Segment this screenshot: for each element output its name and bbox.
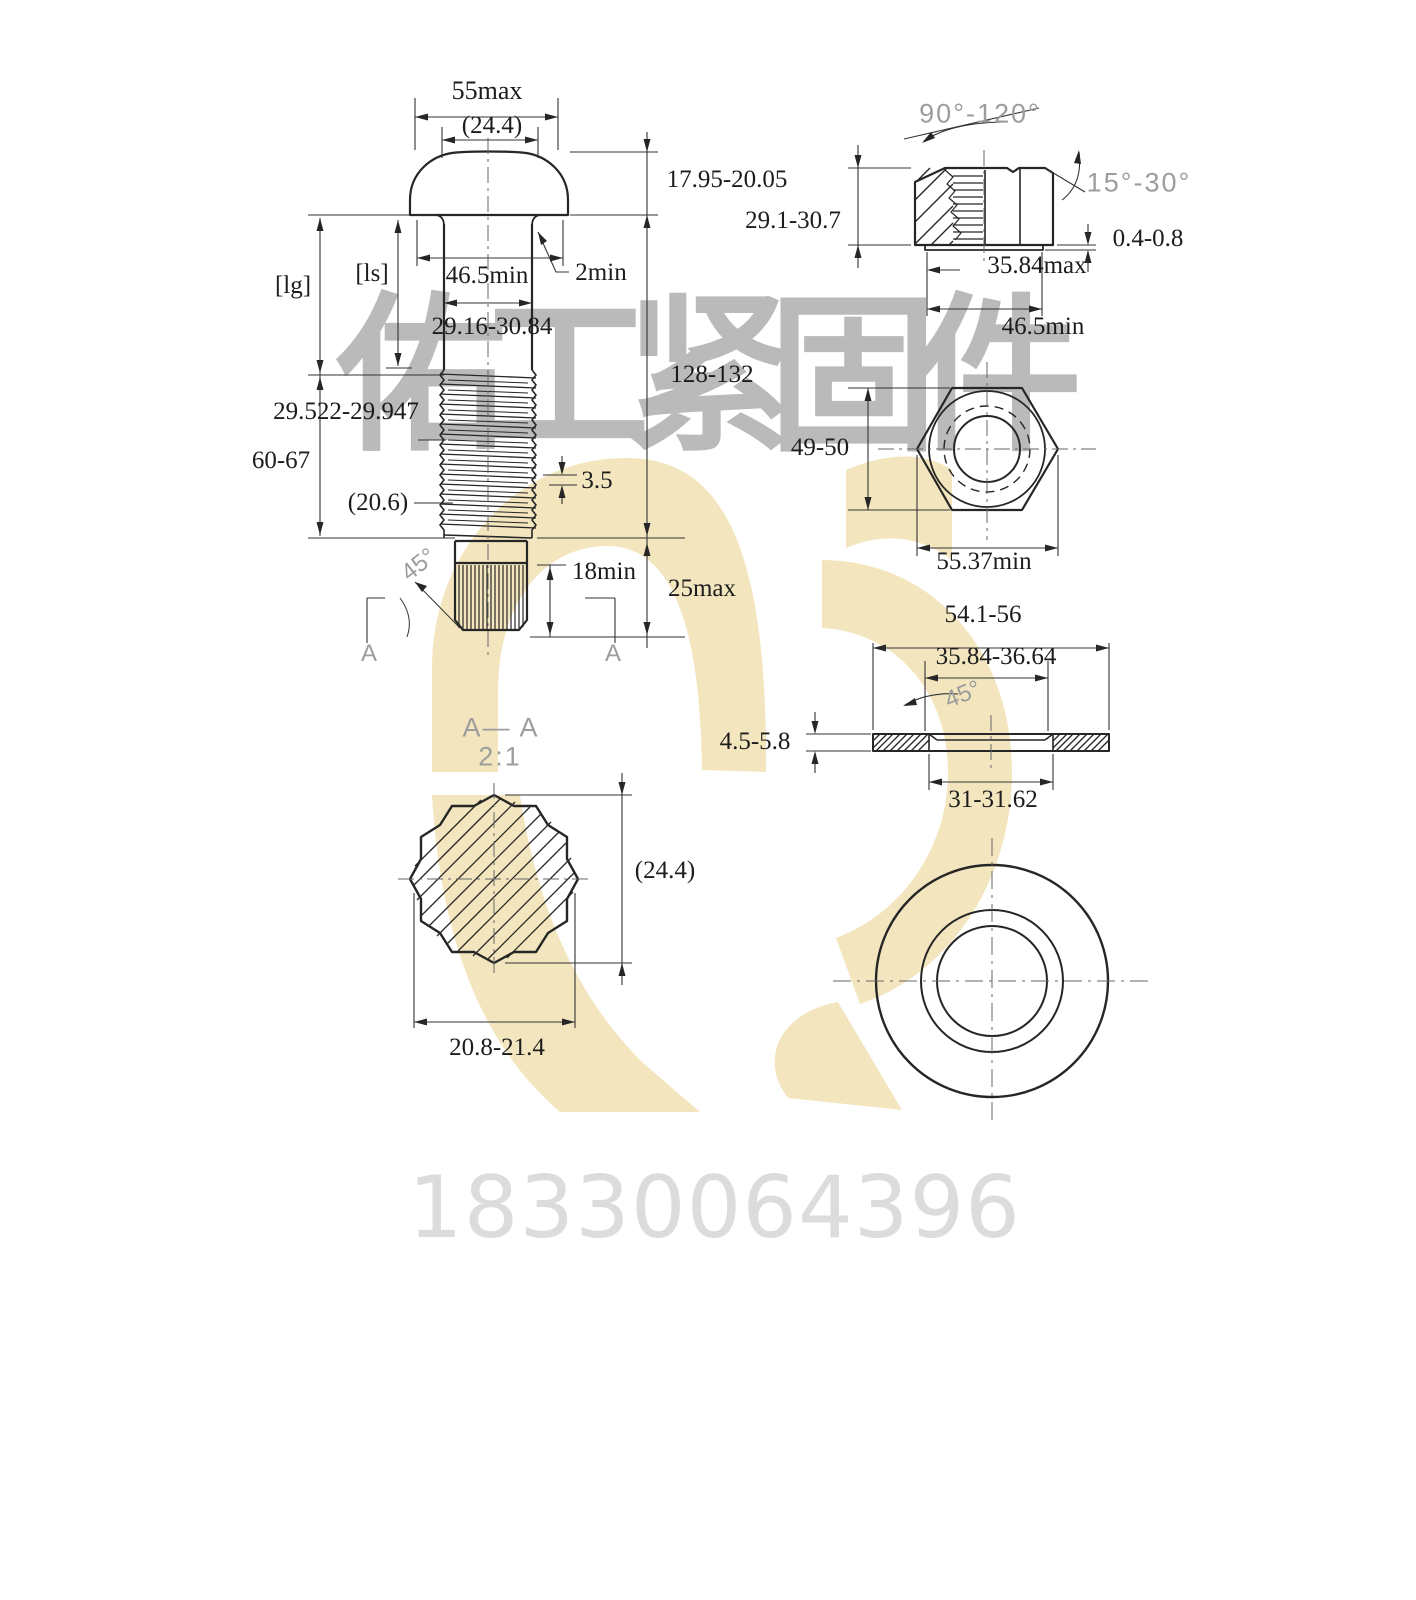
nut-dimension-arrows	[855, 132, 1092, 313]
washer-top-centerlines	[833, 838, 1150, 1125]
cad-drawing	[0, 0, 1416, 1600]
dim-head-ref: (24.4)	[462, 112, 522, 140]
dim-shank-len: [ls]	[355, 260, 388, 288]
dim-washer-od: 54.1-56	[944, 601, 1021, 629]
dim-washer-face-h: 0.4-0.8	[1113, 225, 1184, 253]
section-mark-a-right: A	[605, 640, 621, 668]
section-scale: 2:1	[478, 742, 522, 773]
dim-across-corners: 55.37min	[936, 548, 1031, 576]
section-dimensions	[414, 773, 632, 1028]
dim-head-height: 17.95-20.05	[667, 166, 788, 194]
bolt-dimension-arrows	[317, 114, 651, 636]
dim-washer-face-dia: 35.84max	[987, 252, 1086, 280]
section-centerlines	[398, 783, 592, 975]
section-mark-a-left: A	[361, 640, 377, 668]
dim-across-flats: 49-50	[791, 434, 849, 462]
dim-thread-dia: 29.522-29.947	[273, 398, 419, 426]
dim-total-len: 128-132	[670, 361, 753, 389]
dim-runout-ref: (20.6)	[348, 489, 408, 517]
dim-shank-dia: 29.16-30.84	[432, 313, 553, 341]
washer-hatch-right	[1053, 734, 1109, 751]
section-dimension-arrows	[414, 782, 626, 1026]
dim-grip-len: [lg]	[275, 272, 311, 300]
dim-washer-thickness: 4.5-5.8	[720, 728, 791, 756]
washer-hatch-left	[873, 734, 929, 751]
dim-nut-height: 29.1-30.7	[745, 207, 841, 235]
bolt-head	[410, 152, 568, 216]
dim-nut-bearing: 46.5min	[1002, 313, 1085, 341]
dim-washer-id: 31-31.62	[948, 786, 1038, 814]
dim-spline-len: 18min	[572, 558, 636, 586]
dim-face-angle: 15°-30°	[1087, 168, 1192, 199]
bolt-neck	[455, 541, 527, 563]
thread-right-edge	[532, 370, 536, 538]
dim-countersink-angle: 90°-120°	[919, 99, 1041, 130]
spline-knurl-lines	[459, 565, 523, 630]
bolt-head-fillets	[436, 215, 540, 226]
technical-drawing-page: 佑工紧固件 18330064396	[0, 0, 1416, 1600]
nut-facet-lines	[985, 169, 1020, 245]
dim-thread-len: 60-67	[252, 447, 310, 475]
dim-washer-chamfer-dia: 35.84-36.64	[936, 643, 1057, 671]
section-title: A— A	[462, 713, 539, 744]
dim-fillet: 2min	[575, 259, 626, 287]
nut-dimensions	[848, 108, 1096, 316]
dim-end-len: 25max	[668, 575, 736, 603]
hex-dimensions	[848, 388, 1058, 556]
dim-spline-width: 20.8-21.4	[449, 1034, 545, 1062]
dim-pitch: 3.5	[581, 467, 612, 495]
dim-bearing-dia: 46.5min	[446, 262, 529, 290]
dim-section-ref: (24.4)	[635, 857, 695, 885]
dim-head-dia: 55max	[452, 76, 523, 106]
